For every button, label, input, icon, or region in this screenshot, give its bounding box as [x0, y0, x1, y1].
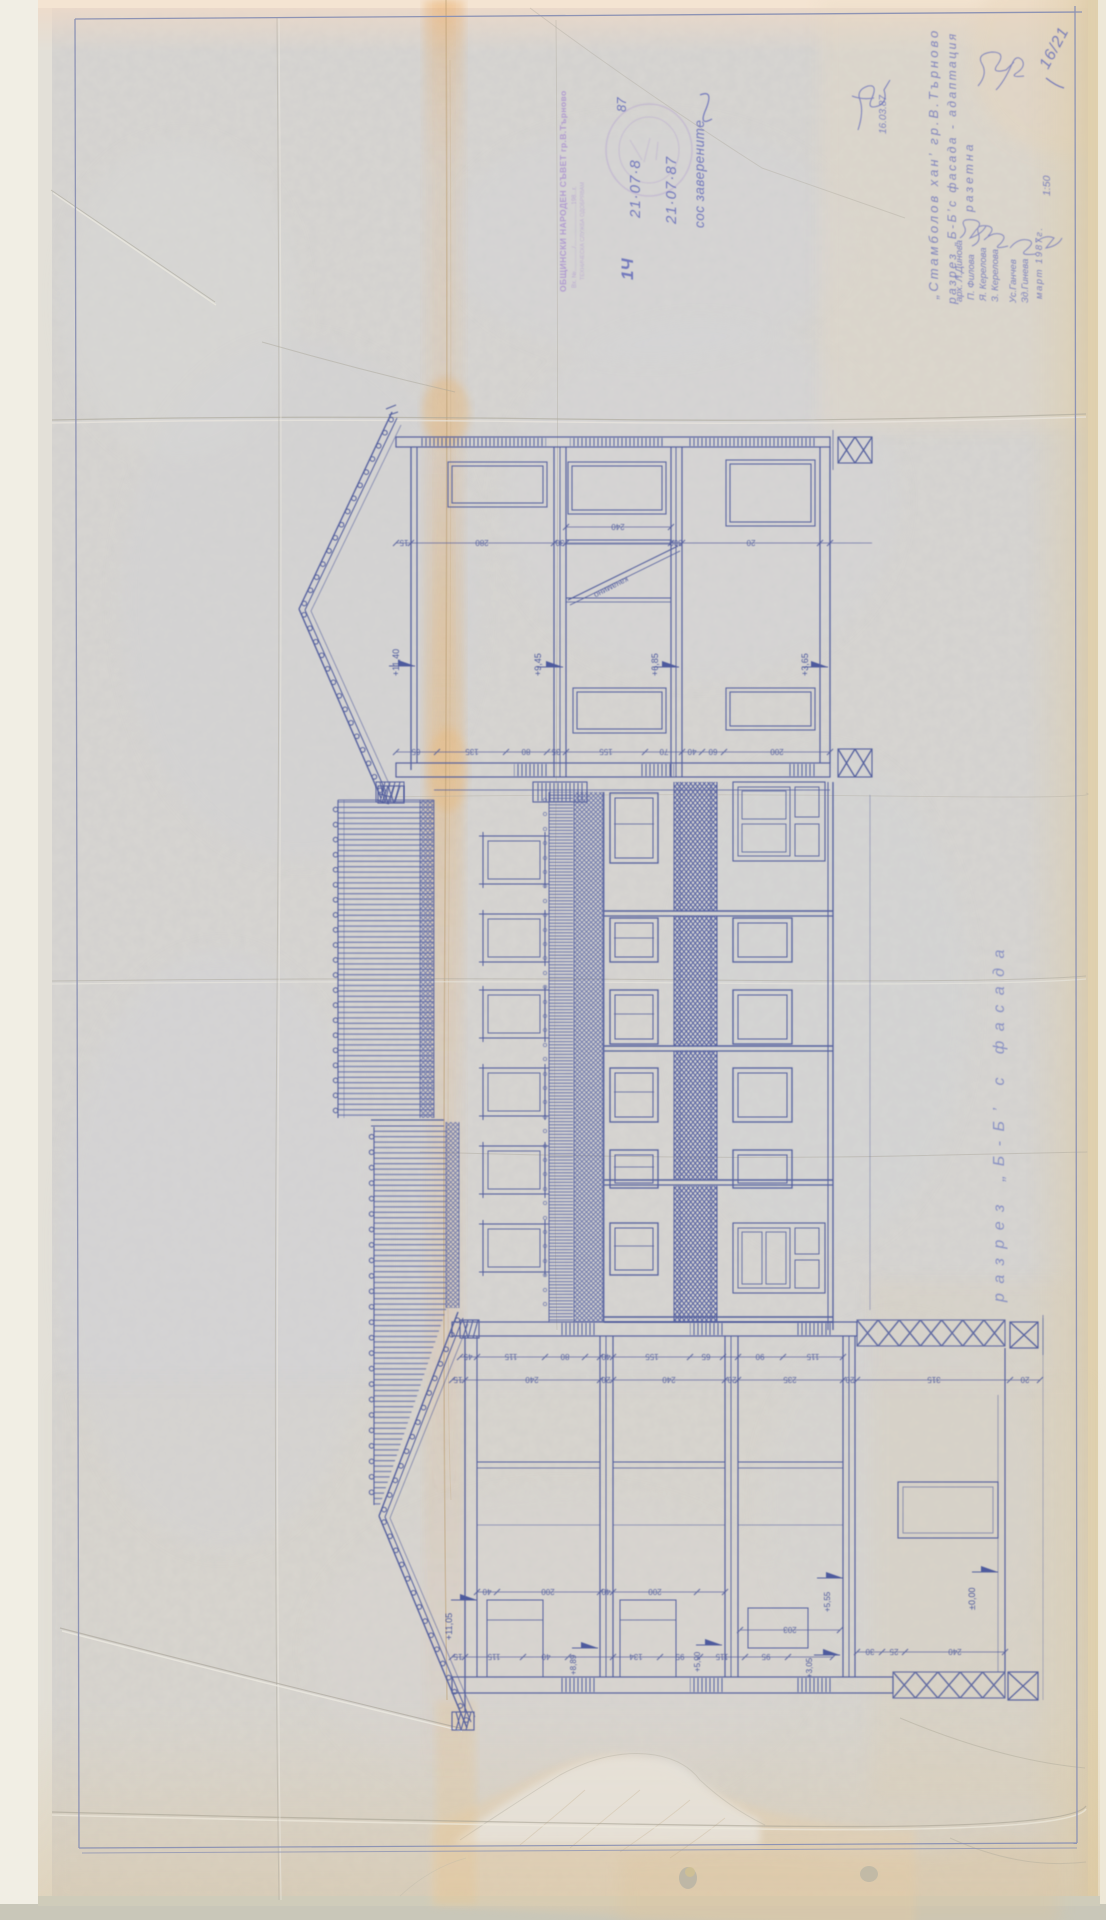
svg-text:115: 115 [487, 1652, 500, 1661]
svg-text:200: 200 [648, 1587, 662, 1596]
svg-text:95: 95 [761, 1652, 770, 1661]
svg-text:„Стамболов хан’ гр.В.Търново: „Стамболов хан’ гр.В.Търново [926, 28, 941, 300]
svg-text:155: 155 [599, 747, 613, 756]
svg-text:+11,40: +11,40 [391, 649, 401, 676]
svg-text:+9,45: +9,45 [533, 653, 543, 676]
svg-text:+3,65: +3,65 [800, 653, 810, 676]
svg-text:95: 95 [675, 1652, 684, 1661]
svg-text:З. Керелова: З. Керелова [990, 249, 1001, 302]
svg-text:20: 20 [845, 1375, 854, 1384]
svg-text:115: 115 [806, 1352, 819, 1361]
svg-text:40: 40 [601, 1587, 610, 1596]
svg-text:+3,05: +3,05 [805, 1657, 814, 1678]
svg-text:155: 155 [645, 1352, 659, 1361]
svg-text:240: 240 [525, 1375, 539, 1384]
svg-text:ОБЩИНСКИ НАРОДЕН СЪВЕТ гр.В.Тъ: ОБЩИНСКИ НАРОДЕН СЪВЕТ гр.В.Търново [558, 90, 568, 292]
svg-text:сос заверените: сос заверените [692, 120, 707, 228]
svg-text:203: 203 [783, 1625, 797, 1634]
svg-text:+5,55: +5,55 [823, 1591, 832, 1612]
svg-text:ТЕХНИЧЕСКА СЛУЖБА ОДОБРЯВАМ: ТЕХНИЧЕСКА СЛУЖБА ОДОБРЯВАМ [580, 182, 586, 280]
svg-text:115: 115 [504, 1352, 517, 1361]
svg-text:280: 280 [475, 538, 489, 547]
svg-text:135: 135 [465, 747, 479, 756]
svg-text:15: 15 [399, 538, 408, 547]
svg-text:90: 90 [755, 1352, 764, 1361]
svg-text:80: 80 [560, 1352, 569, 1361]
svg-text:240: 240 [948, 1647, 962, 1656]
svg-text:21·07·8: 21·07·8 [627, 159, 644, 219]
svg-text:300: 300 [669, 538, 683, 547]
svg-text:87: 87 [614, 97, 629, 112]
svg-text:25: 25 [889, 1647, 898, 1656]
svg-text:240: 240 [662, 1375, 676, 1384]
svg-text:1:50: 1:50 [1041, 175, 1053, 196]
svg-text:45: 45 [463, 1352, 472, 1361]
svg-text:20: 20 [746, 538, 755, 547]
svg-text:30: 30 [555, 538, 564, 547]
svg-text:+8,89: +8,89 [569, 1654, 578, 1675]
svg-text:20: 20 [1020, 1375, 1029, 1384]
svg-text:15: 15 [453, 1652, 462, 1661]
svg-text:30: 30 [865, 1647, 874, 1656]
svg-text:200: 200 [541, 1587, 555, 1596]
svg-text:65: 65 [411, 747, 420, 756]
svg-text:разетна: разетна [962, 141, 976, 213]
svg-text:240: 240 [611, 522, 625, 531]
svg-text:200: 200 [770, 747, 784, 756]
svg-text:Ус.Ганчев: Ус.Ганчев [1008, 259, 1019, 304]
svg-text:134: 134 [629, 1652, 643, 1661]
svg-text:разрез „Б-Б’ с фасада: разрез „Б-Б’ с фасада [991, 940, 1008, 1303]
svg-text:арх. Л.Динова: арх. Л.Динова [954, 240, 965, 302]
svg-text:15: 15 [453, 1375, 462, 1384]
svg-text:115: 115 [715, 1652, 728, 1661]
svg-text:40: 40 [541, 1652, 550, 1661]
svg-text:60: 60 [708, 747, 717, 756]
svg-text:21·07·87: 21·07·87 [663, 156, 680, 225]
svg-text:16.03.87: 16.03.87 [878, 95, 889, 134]
svg-text:40: 40 [687, 747, 696, 756]
svg-text:80: 80 [521, 747, 530, 756]
svg-text:П. Филова: П. Филова [966, 254, 977, 300]
svg-text:35: 35 [551, 747, 560, 756]
svg-text:+5,90: +5,90 [693, 1651, 702, 1672]
svg-text:±0,00: ±0,00 [967, 1588, 977, 1610]
svg-text:65: 65 [701, 1352, 710, 1361]
svg-text:20: 20 [727, 1375, 736, 1384]
svg-text:235: 235 [783, 1375, 797, 1384]
svg-text:315: 315 [927, 1375, 941, 1384]
svg-text:Зд.Гинева: Зд.Гинева [1020, 259, 1031, 303]
svg-text:70: 70 [659, 747, 668, 756]
svg-text:20: 20 [601, 1375, 610, 1384]
svg-text:Вх. №............../..........: Вх. №............../....................… [571, 186, 578, 288]
svg-text:Я. Керелова: Я. Керелова [978, 247, 989, 302]
svg-text:1Ч: 1Ч [618, 258, 637, 280]
svg-text:+6,85: +6,85 [650, 653, 660, 676]
svg-text:+11,05: +11,05 [444, 1613, 454, 1640]
svg-text:40: 40 [601, 1352, 610, 1361]
svg-text:40: 40 [482, 1587, 491, 1596]
